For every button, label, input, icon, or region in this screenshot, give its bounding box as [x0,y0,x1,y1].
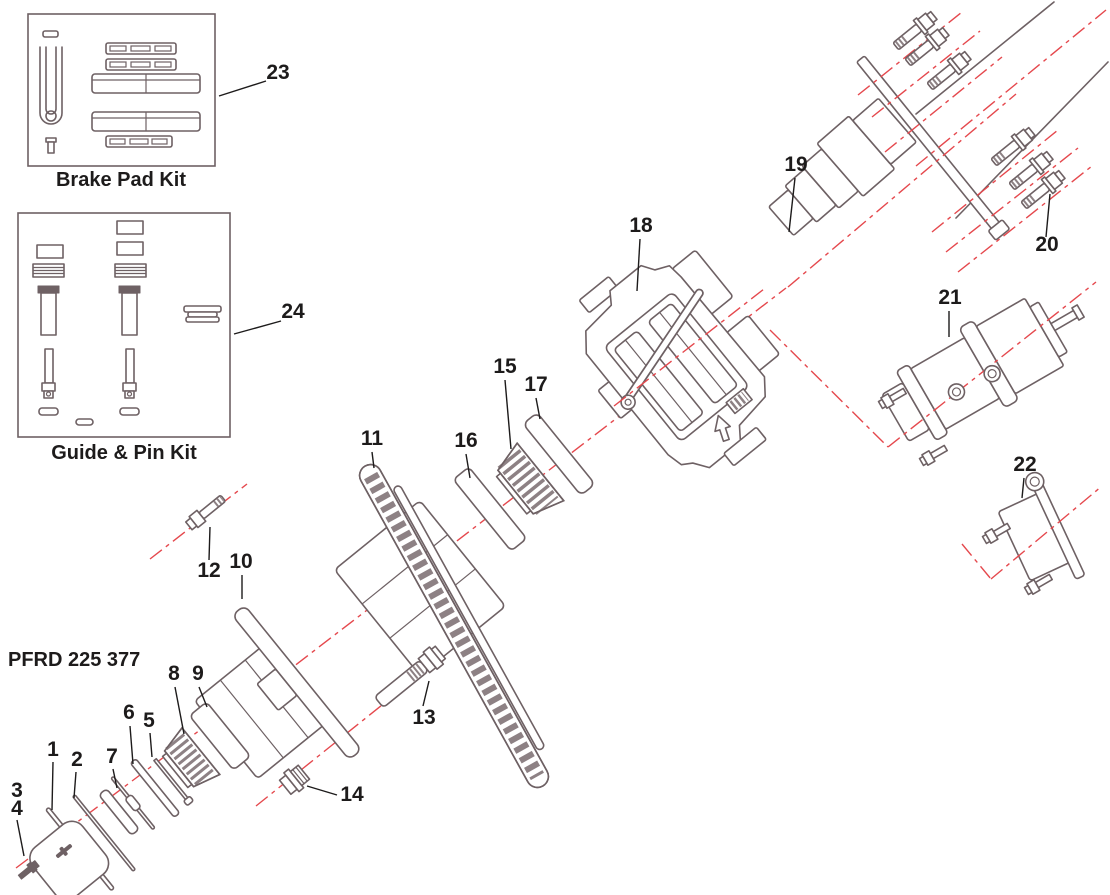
part-label-12: 12 [197,559,220,582]
part-19-axle-spindle [758,94,920,248]
part-label-14: 14 [340,783,364,806]
part-label-15: 15 [493,355,517,378]
part-21-brake-chamber [872,271,1103,467]
part-3-screw [17,859,40,881]
part-label-5: 5 [143,709,155,732]
kit-label-23: 23 [266,61,289,84]
guide-pin-kit-box [18,213,230,437]
part-18-brake-caliper [546,224,816,503]
part-12-mounting-bolt [184,493,227,532]
exploded-parts-diagram: Brake Pad Kit Guide & Pin Kit PFRD 225 3… [0,0,1110,895]
part-label-13: 13 [412,706,435,729]
part-label-7: 7 [106,745,118,768]
part-label-21: 21 [938,286,962,309]
brake-pad-kit-title: Brake Pad Kit [56,169,186,191]
part-20-mounting-bolts [890,9,1067,213]
brake-pad-kit-box [28,14,215,166]
part-label-9: 9 [192,662,204,685]
product-code: PFRD 225 377 [8,649,140,671]
part-label-10: 10 [229,550,252,573]
part-label-6: 6 [123,701,135,724]
part-label-22: 22 [1013,453,1036,476]
part-label-2: 2 [71,748,83,771]
part-label-20: 20 [1035,233,1058,256]
part-label-17: 17 [524,373,547,396]
part-label-11: 11 [361,427,384,450]
part-label-8: 8 [168,662,180,685]
part-22-mounting-bracket [981,470,1102,597]
part-label-18: 18 [629,214,653,237]
part-14-axle-nut [278,763,312,797]
part-label-16: 16 [454,429,477,452]
guide-pin-kit-title: Guide & Pin Kit [51,442,197,464]
diagram-canvas: Brake Pad Kit Guide & Pin Kit PFRD 225 3… [0,0,1110,895]
part-label-1: 1 [47,738,59,761]
kit-label-24: 24 [281,300,305,323]
part-label-4: 4 [11,797,23,820]
part-label-19: 19 [784,153,807,176]
